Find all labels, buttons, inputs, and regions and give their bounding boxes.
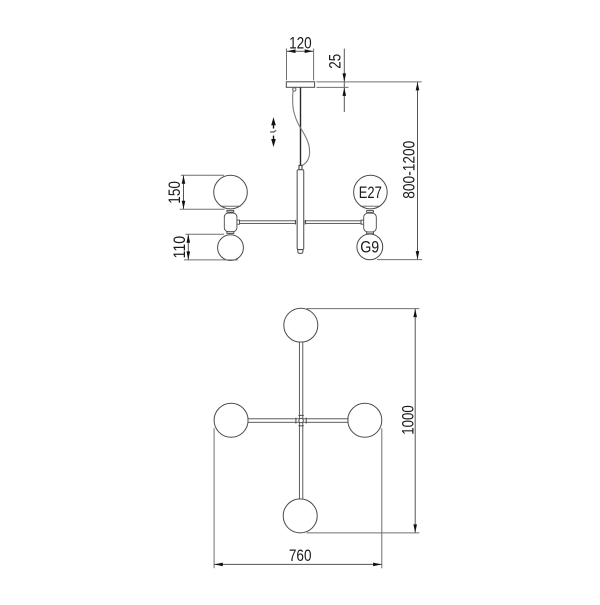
svg-text:1000: 1000: [399, 405, 417, 435]
svg-text:E27: E27: [359, 184, 382, 202]
svg-text:150: 150: [166, 181, 184, 204]
svg-text:25: 25: [326, 54, 344, 69]
svg-text:G9: G9: [360, 238, 379, 256]
svg-text:800-1200: 800-1200: [401, 141, 419, 199]
svg-text:110: 110: [171, 236, 189, 259]
svg-text:760: 760: [289, 547, 312, 565]
svg-text:120: 120: [289, 34, 312, 52]
